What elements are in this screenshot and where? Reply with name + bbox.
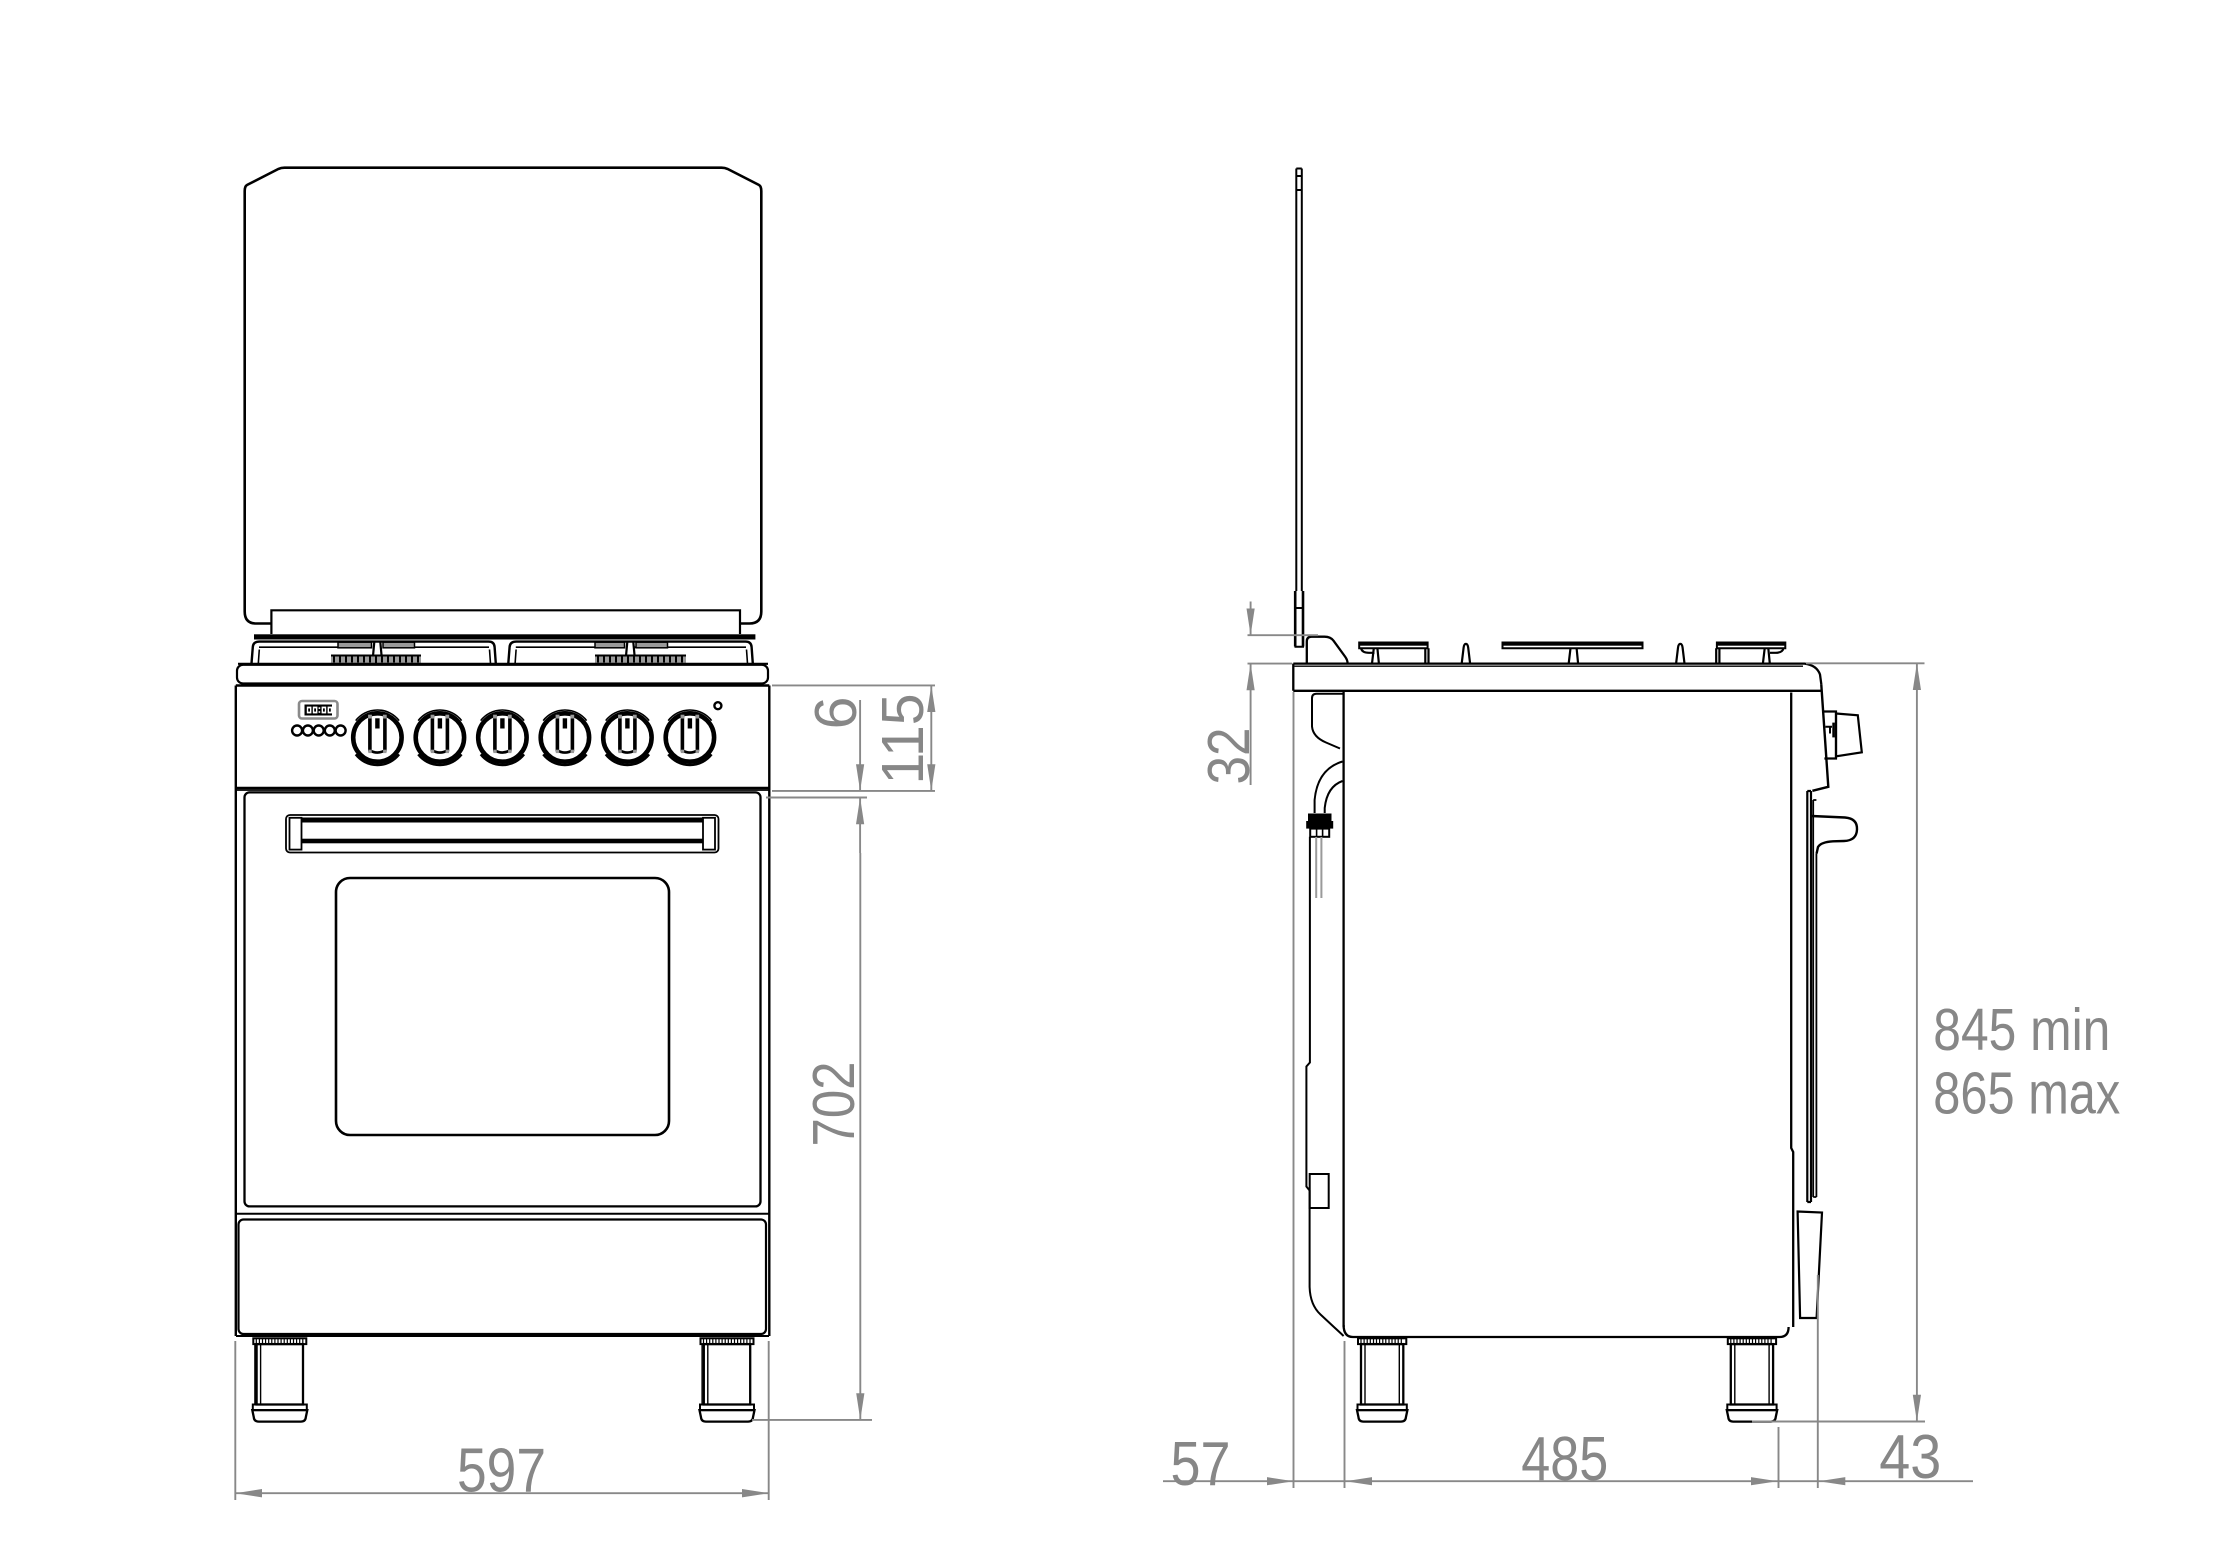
svg-text:115: 115	[870, 694, 936, 785]
svg-text:32: 32	[1196, 728, 1262, 785]
svg-text:6: 6	[803, 697, 869, 730]
svg-text:597: 597	[457, 1437, 546, 1506]
svg-text:702: 702	[801, 1062, 867, 1147]
svg-text:485: 485	[1521, 1425, 1608, 1494]
svg-text:43: 43	[1879, 1423, 1941, 1492]
svg-text:57: 57	[1171, 1430, 1231, 1499]
svg-text:865 max: 865 max	[1933, 1061, 2120, 1127]
svg-text:845 min: 845 min	[1933, 997, 2110, 1063]
